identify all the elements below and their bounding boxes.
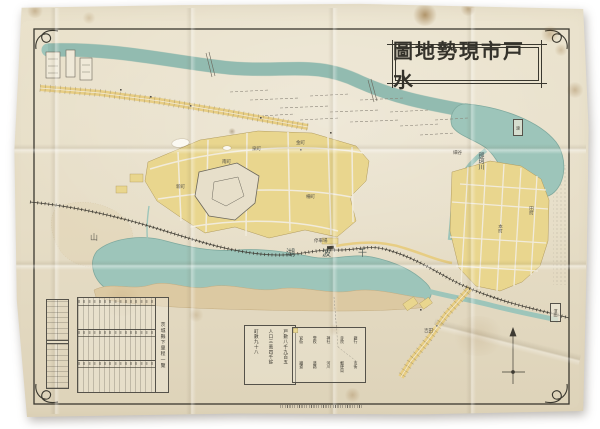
table-section-divider [47, 340, 68, 345]
ferry-box-label: 渡 [513, 119, 523, 136]
legend-label: 學校 [313, 336, 317, 351]
printer-imprint-line [280, 405, 362, 408]
town-name-label: 本町 [497, 224, 502, 238]
stain [344, 388, 361, 402]
legend-label: 寺院 [341, 336, 345, 351]
map-sheet-paper: 圖地勢現市戸水 湖波千 那珂川 山 停車場 本町 泉町 南町 金町 田町 新町 … [0, 0, 600, 429]
legend-label: 道路 [313, 361, 317, 376]
town-name-label: 細谷 [453, 152, 462, 157]
town-name-label: 田町 [528, 206, 533, 220]
legend-row: 鐵道 道路 河川 郵便局 市街 [295, 360, 363, 376]
legend-item: 銀行 [350, 335, 362, 351]
fold-crease-horizontal [14, 260, 586, 270]
legend-label: 銀行 [354, 336, 358, 351]
marsh-marks [230, 90, 468, 135]
town-name-label: 吉田 [424, 330, 433, 335]
station-label: 停車場 [314, 240, 328, 245]
stain [554, 44, 568, 56]
map-sheet-wrapper: 圖地勢現市戸水 湖波千 那珂川 山 停車場 本町 泉町 南町 金町 田町 新町 … [0, 0, 600, 429]
legend-label: 官衙 [300, 336, 304, 351]
town-name-label: 柵町 [306, 196, 315, 201]
legend-item: 寺院 [337, 335, 349, 351]
town-name-label: 新町 [176, 186, 185, 191]
prefecture-distance-table: 茨城縣下里程一覽 [77, 297, 169, 393]
stain [460, 2, 476, 16]
title-box-tick [541, 40, 542, 88]
stain [540, 26, 560, 42]
stat-population: 人口三萬四千餘 [267, 329, 273, 381]
photographed-antique-map: 圖地勢現市戸水 湖波千 那珂川 山 停車場 本町 泉町 南町 金町 田町 新町 … [0, 0, 600, 429]
table-band [78, 298, 155, 330]
legend-label: 河川 [327, 361, 331, 376]
town-name-label: 金町 [296, 142, 305, 147]
stain [26, 4, 44, 18]
foxing [450, 316, 506, 356]
legend-row: 官衙 學校 神社 寺院 銀行 [295, 335, 363, 351]
fold-crease-vertical [186, 8, 196, 414]
city-statistics-box: 戸數八千九百五 人口三萬四千餘 町數九十八 [244, 325, 296, 385]
stain [188, 308, 204, 322]
map-title: 圖地勢現市戸水 [393, 45, 541, 83]
mountain-label: 山 [90, 234, 98, 242]
town-name-label: 泉町 [252, 148, 261, 153]
title-cartouche: 圖地勢現市戸水 [392, 44, 542, 84]
stat-households: 戸數八千九百五 [282, 329, 288, 381]
legend-item: 官衙 [296, 335, 308, 351]
legend-label: 鐵道 [300, 361, 304, 376]
stain [566, 82, 584, 98]
distance-table-narrow [46, 299, 69, 389]
river-label: 那珂川 [477, 152, 483, 178]
hamlet-box-label: 濱田 [550, 303, 561, 322]
stain [228, 128, 236, 135]
map-legend: 官衙 學校 神社 寺院 銀行 鐵道 道路 [292, 327, 366, 383]
legend-label: 郵便局 [341, 361, 345, 376]
stat-towns: 町數九十八 [252, 329, 258, 381]
legend-item: 神社 [323, 335, 335, 351]
legend-item: 道路 [309, 360, 321, 376]
stain [412, 4, 438, 26]
table-caption: 茨城縣下里程一覽 [155, 298, 168, 392]
legend-item: 市街 [350, 360, 362, 376]
paper-hole [223, 146, 231, 150]
legend-item: 河川 [323, 360, 335, 376]
town-name-label: 南町 [222, 161, 231, 166]
legend-item: 郵便局 [337, 360, 349, 376]
legend-swatch [293, 328, 298, 333]
table-band [78, 329, 155, 361]
table-band [78, 360, 155, 392]
legend-label: 神社 [327, 336, 331, 351]
lake-label: 湖波千 [286, 250, 394, 259]
stain [82, 12, 96, 24]
legend-item: 鐵道 [296, 360, 308, 376]
legend-label: 市街 [354, 361, 358, 376]
legend-item: 學校 [309, 335, 321, 351]
